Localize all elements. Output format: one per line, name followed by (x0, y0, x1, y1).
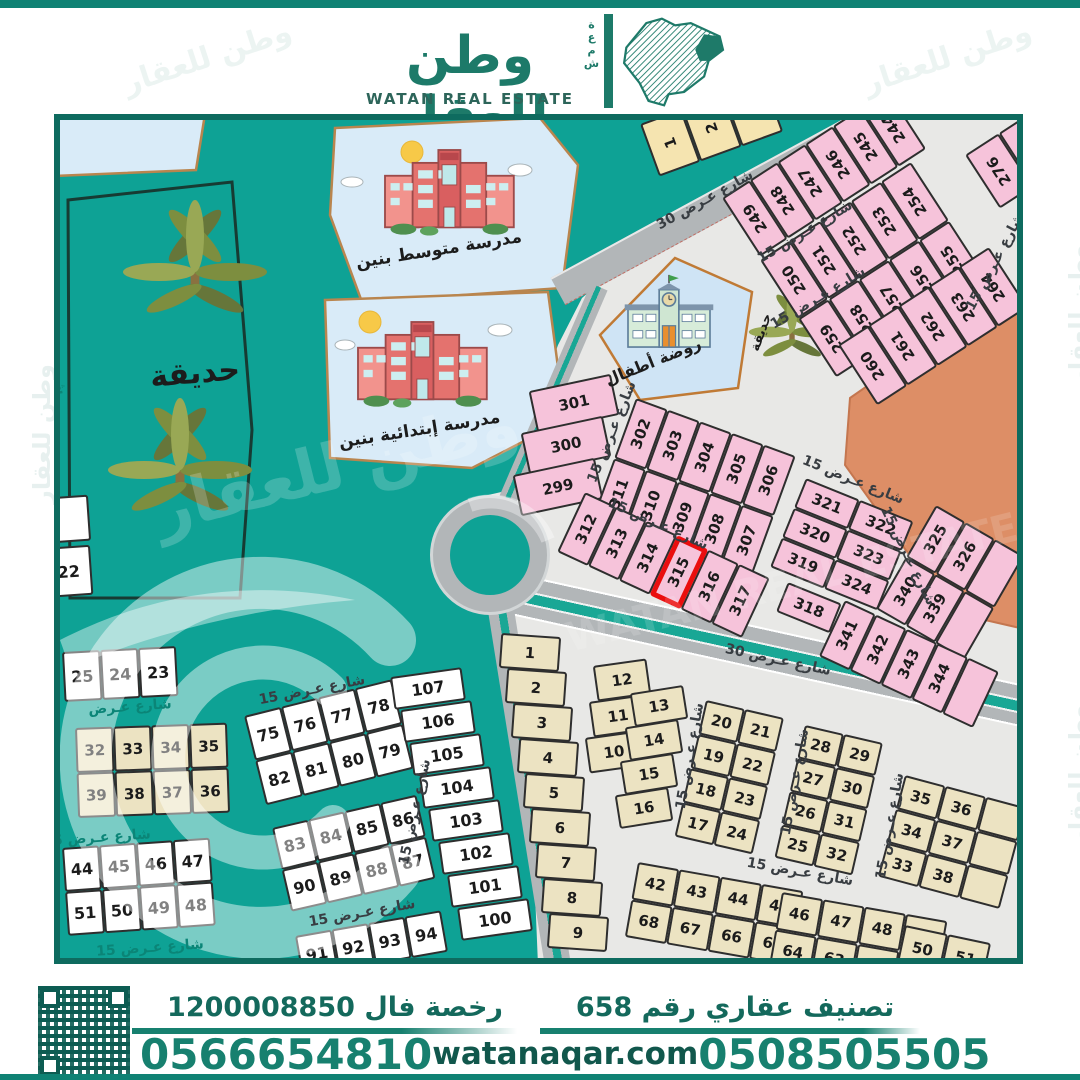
street-label: شارع عـرض 15 (606, 495, 711, 553)
watermark-brand: وطن للعقار (859, 14, 1036, 101)
street-label: شارع عـرض 15 (96, 936, 205, 959)
classification-number: تصنيف عقاري رقم 658 (560, 992, 910, 1023)
street-label: شارع عـرض 15 (877, 504, 939, 608)
bottom-teal-bar (0, 1074, 1080, 1080)
street-label: شارع عـرض 15 (873, 772, 907, 881)
street-label: شارع عـرض (88, 696, 172, 718)
street-label: ش (54, 374, 70, 396)
street-label: شارع عـرض 15 (258, 672, 367, 708)
street-label: شارع عـرض 15 (778, 728, 812, 837)
street-label: شارع عـرض 15 (963, 211, 1023, 314)
street-labels: شارع عـرض 30شارع عـرض 15شارع عـرض 15شارع… (54, 114, 1023, 964)
street-label: شارع عـرض 15 (584, 379, 639, 485)
street-label: شارع عـرض 15 (54, 826, 151, 849)
street-label: شارع عـرض 15 (768, 263, 869, 332)
street-label: شارع عـرض 15 (755, 197, 856, 266)
street-label: شارع عـرض 15 (746, 855, 855, 889)
street-label: شارع عـرض 30 (724, 641, 833, 679)
phone-left[interactable]: 0566654810 (140, 1030, 432, 1079)
footer-contacts: 0566654810 watanaqar.com 0508505505 (140, 1032, 960, 1076)
logo-vertical-word: شمعة (585, 18, 598, 108)
phone-right[interactable]: 0508505505 (698, 1030, 990, 1079)
watermark-brand: وطن للعقار (1064, 244, 1080, 384)
fal-license: رخصة فال 1200008850 (150, 992, 520, 1023)
plot-map: 1224924824724624524425025125225325425925… (54, 114, 1023, 964)
watermark-brand: وطن للعقار (1064, 704, 1080, 844)
page: وطن للعقار وطن للعقار وطن للعقار WATAN R… (0, 0, 1080, 1080)
qr-code-left[interactable] (38, 986, 130, 1078)
logo-bar (604, 14, 613, 108)
brand-english: WATAN REAL ESTATE (350, 90, 590, 108)
street-label: شارع عـرض 15 (673, 702, 707, 811)
street-label: شارع عـرض 30 (654, 167, 756, 233)
top-teal-bar (0, 0, 1080, 8)
saudi-map-icon (617, 12, 729, 112)
watermark-brand: وطن للعقار (28, 364, 56, 504)
website-link[interactable]: watanaqar.com (432, 1036, 698, 1072)
street-label: شارع عـرض 15 (800, 452, 906, 507)
street-label: شارع عـرض 15 (308, 896, 417, 930)
watermark-brand: وطن للعقار (119, 14, 296, 101)
street-label: شارع عـرض 15 (396, 758, 434, 867)
